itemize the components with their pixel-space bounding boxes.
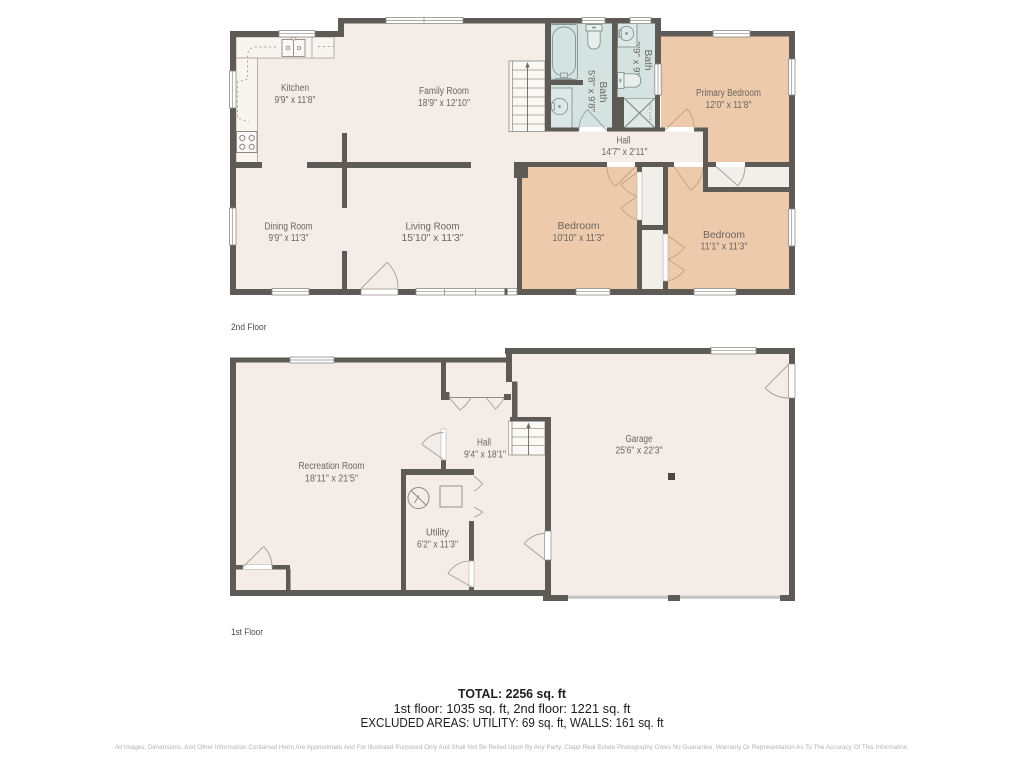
svg-text:EXCLUDED AREAS: UTILITY: 69 sq: EXCLUDED AREAS: UTILITY: 69 sq. ft, WALL… <box>361 716 664 730</box>
svg-text:12'0" x 11'8": 12'0" x 11'8" <box>706 100 752 111</box>
svg-text:6'2" x 11'3": 6'2" x 11'3" <box>417 540 458 551</box>
svg-text:Utility: Utility <box>426 528 449 539</box>
svg-text:Bedroom: Bedroom <box>703 230 745 241</box>
svg-text:Hall: Hall <box>617 136 631 147</box>
svg-text:Primary Bedroom: Primary Bedroom <box>696 88 761 99</box>
svg-text:18'11" x 21'5": 18'11" x 21'5" <box>305 474 358 485</box>
svg-text:Kitchen: Kitchen <box>281 83 309 94</box>
svg-text:2nd Floor: 2nd Floor <box>231 322 267 332</box>
svg-text:Hall: Hall <box>477 438 491 449</box>
svg-text:9'4" x 18'1": 9'4" x 18'1" <box>464 450 506 461</box>
svg-text:Dining Room: Dining Room <box>265 222 313 233</box>
svg-text:Living Room: Living Room <box>406 222 460 233</box>
svg-text:15'10" x 11'3": 15'10" x 11'3" <box>402 233 464 244</box>
svg-text:1st floor: 1035 sq. ft, 2nd fl: 1st floor: 1035 sq. ft, 2nd floor: 1221 … <box>394 702 632 716</box>
svg-text:Family Room: Family Room <box>419 86 469 97</box>
svg-text:14'7" x 2'11": 14'7" x 2'11" <box>602 147 648 158</box>
svg-text:10'10" x 11'3": 10'10" x 11'3" <box>553 233 605 244</box>
svg-text:Bedroom: Bedroom <box>558 221 600 232</box>
svg-text:1st Floor: 1st Floor <box>231 627 263 637</box>
svg-text:9'9" x 11'8": 9'9" x 11'8" <box>275 95 316 106</box>
svg-text:9'9" x 11'3": 9'9" x 11'3" <box>269 233 309 244</box>
svg-text:Recreation Room: Recreation Room <box>299 461 365 472</box>
svg-text:3'4" x 2'6": 3'4" x 2'6" <box>648 104 653 122</box>
svg-text:Bath: Bath <box>597 82 608 103</box>
svg-text:5'8" x 9'8": 5'8" x 9'8" <box>587 70 597 112</box>
svg-text:TOTAL: 2256 sq. ft: TOTAL: 2256 sq. ft <box>458 687 567 701</box>
svg-text:All Images, Dimensions, And Ot: All Images, Dimensions, And Other Inform… <box>115 745 909 751</box>
svg-text:Garage: Garage <box>626 434 653 445</box>
svg-text:Bath: Bath <box>642 50 653 71</box>
svg-text:25'6" x 22'3": 25'6" x 22'3" <box>616 446 663 457</box>
svg-text:11'1" x 11'3": 11'1" x 11'3" <box>701 242 748 253</box>
svg-text:18'9" x 12'10": 18'9" x 12'10" <box>418 98 470 109</box>
